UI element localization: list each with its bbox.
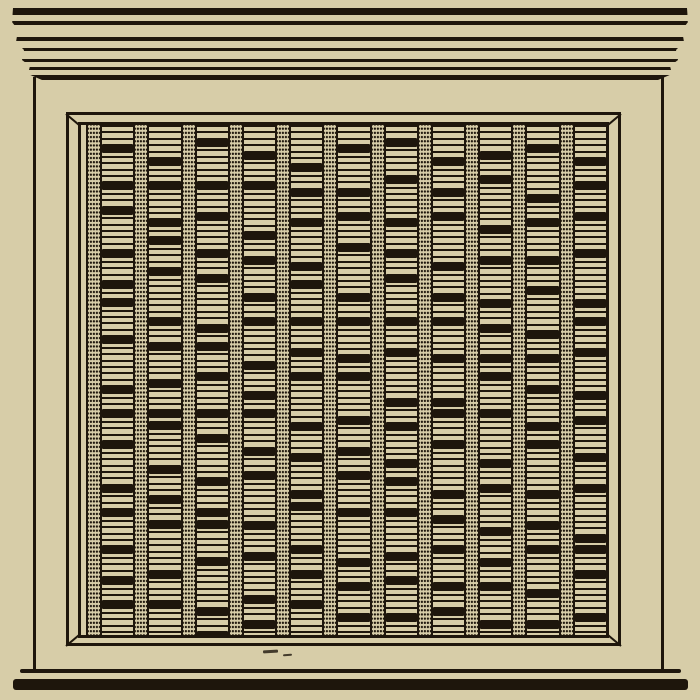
stack-bar [433,515,464,524]
stack-line [338,384,369,386]
stack-bar [575,157,606,166]
stack-line [244,545,275,547]
stack-line [102,421,133,423]
stack-line [480,434,511,436]
stack-line [197,618,228,620]
stack-bar [244,317,275,326]
stack-line [244,175,275,177]
stack-line [102,162,133,164]
stack-line [102,539,133,541]
stack-line [244,427,275,429]
stack-bar [149,520,180,529]
stack-bar [244,151,275,160]
slat-unit [86,125,133,635]
stack-line [291,434,322,436]
stack-line [575,521,606,523]
stack-line [480,144,511,146]
stack-line [338,483,369,485]
stack-line [149,476,180,478]
cabinet-side-left [33,77,36,672]
stack-bar [527,144,558,153]
bar-stack [433,125,464,635]
stack-line [386,243,417,245]
stack-line [433,570,464,572]
stack-line [197,390,228,392]
stack-bar [291,570,322,579]
stack-bar [527,521,558,530]
perforated-strip [181,125,197,635]
stack-bar [244,361,275,370]
stack-line [386,212,417,214]
stack-line [575,261,606,263]
stack-line [480,427,511,429]
stack-bar [338,471,369,480]
stack-line [527,324,558,326]
stack-line [102,372,133,374]
stack-bar [291,317,322,326]
stack-bar [338,447,369,456]
stack-line [433,385,464,387]
stack-line [149,193,180,195]
stack-bar [149,465,180,474]
stack-bar [433,188,464,197]
stack-line [575,594,606,596]
stack-line [433,477,464,479]
stack-bar [244,471,275,480]
stack-line [480,453,511,455]
stack-line [527,274,558,276]
stack-line [433,452,464,454]
stack-line [575,440,606,442]
stack-bar [244,552,275,561]
stack-line [197,169,228,171]
stack-line [102,125,133,127]
stack-line [149,175,180,177]
stack-line [244,495,275,497]
stack-line [338,489,369,491]
stack-line [291,397,322,399]
stack-line [102,557,133,559]
stack-bar [433,212,464,221]
stack-line [291,631,322,633]
stack-line [433,206,464,208]
stack-line [102,465,133,467]
stack-line [575,607,606,609]
stack-line [433,329,464,331]
stack-line [244,483,275,485]
stack-line [244,589,275,591]
stack-line [527,175,558,177]
stack-bar [386,613,417,622]
stack-line [527,138,558,140]
stack-bar [480,527,511,536]
stack-line [102,360,133,362]
stack-line [291,625,322,627]
stack-bar [433,409,464,418]
stack-line [102,316,133,318]
stack-line [338,552,369,554]
stack-line [149,513,180,515]
stack-bar [338,293,369,302]
stack-bar [197,631,228,635]
perforated-strip [370,125,386,635]
stack-line [338,342,369,344]
stack-line [149,151,180,153]
stack-line [149,199,180,201]
stack-line [575,625,606,627]
stack-line [244,218,275,220]
stack-line [197,243,228,245]
stack-line [575,409,606,411]
stack-line [338,607,369,609]
stack-line [527,188,558,190]
stack-line [291,513,322,515]
stack-line [433,379,464,381]
stack-line [527,267,558,269]
stack-line [338,545,369,547]
stack-line [575,267,606,269]
stack-bar [480,151,511,160]
stack-line [244,249,275,251]
bar-stack [102,125,133,635]
stack-bar [575,570,606,579]
stack-line [575,230,606,232]
stack-line [291,384,322,386]
stack-line [149,594,180,596]
stack-bar [102,440,133,449]
stack-bar [433,354,464,363]
stack-line [291,588,322,590]
stack-line [433,557,464,559]
stack-line [433,600,464,602]
stack-bar [291,545,322,554]
stack-line [527,607,558,609]
stack-line [386,385,417,387]
stack-bar [527,218,558,227]
stack-line [244,329,275,331]
stack-line [102,292,133,294]
stack-line [386,236,417,238]
stack-line [149,279,180,281]
stack-line [102,353,133,355]
slat-unit [181,125,228,635]
stack-bar [433,607,464,616]
stack-line [575,563,606,565]
stack-line [386,261,417,263]
print-artifact-dash [283,654,292,657]
stack-line [480,390,511,392]
stack-bar [480,175,511,184]
stack-line [480,539,511,541]
stack-line [527,156,558,158]
stack-bar [197,409,228,418]
stack-line [197,149,228,151]
stack-line [575,385,606,387]
stack-line [149,169,180,171]
stack-line [149,298,180,300]
stack-line [575,527,606,529]
stack-line [149,390,180,392]
stack-bar [575,484,606,493]
stack-line [433,434,464,436]
stack-line [386,526,417,528]
stack-line [338,427,369,429]
stack-line [149,507,180,509]
stack-line [102,427,133,429]
cornice-line [12,59,688,62]
stack-line [102,612,133,614]
stack-line [338,465,369,467]
stack-bar [480,582,511,591]
stack-line [102,471,133,473]
stack-line [386,545,417,547]
stack-line [480,607,511,609]
stack-line [244,403,275,405]
stack-bar [149,495,180,504]
stack-line [197,131,228,133]
stack-line [480,570,511,572]
stack-line [102,631,133,633]
stack-line [149,329,180,331]
stack-line [575,311,606,313]
stack-line [102,520,133,522]
stack-line [575,515,606,517]
stack-line [575,206,606,208]
stack-line [527,230,558,232]
stack-line [338,254,369,256]
stack-line [338,526,369,528]
stack-bar [102,206,133,215]
stack-bar [575,391,606,400]
stack-line [386,434,417,436]
stack-line [480,545,511,547]
stack-line [197,353,228,355]
stack-line [338,403,369,405]
stack-bar [291,372,322,381]
stack-line [102,230,133,232]
stack-bar [244,293,275,302]
stack-bar [197,520,228,529]
slat-unit [322,125,369,635]
cornice-line [12,75,688,80]
stack-line [527,249,558,251]
stack-line [244,274,275,276]
stack-line [386,600,417,602]
stack-line [197,224,228,226]
slat-unit [417,125,464,635]
perforated-strip [417,125,433,635]
stack-line [197,335,228,337]
stack-bar [575,545,606,554]
stack-line [433,625,464,627]
stack-line [149,131,180,133]
stack-line [433,243,464,245]
stack-line [433,421,464,423]
stack-line [149,230,180,232]
stack-line [386,125,417,127]
stack-line [575,199,606,201]
stack-line [338,224,369,226]
stack-line [197,298,228,300]
stack-line [527,533,558,535]
stack-line [102,236,133,238]
stack-line [338,625,369,627]
stack-bar [244,256,275,265]
stack-line [102,434,133,436]
stack-line [291,249,322,251]
stack-line [149,248,180,250]
stack-line [197,156,228,158]
stack-line [527,613,558,615]
stack-line [386,206,417,208]
stack-line [149,612,180,614]
perforated-strip [464,125,480,635]
stack-line [338,230,369,232]
stack-line [386,489,417,491]
stack-bar [575,249,606,258]
stack-line [102,563,133,565]
stack-bar [338,317,369,326]
stack-bar [575,181,606,190]
stack-line [291,157,322,159]
stack-line [244,440,275,442]
stack-bar [149,181,180,190]
stack-line [291,212,322,214]
stack-bar [575,348,606,357]
stack-line [480,125,511,127]
stack-line [149,353,180,355]
bar-stack [527,125,558,635]
stack-line [575,144,606,146]
stack-line [575,427,606,429]
stack-line [480,471,511,473]
stack-line [433,484,464,486]
bar-stack [244,125,275,635]
stack-line [527,600,558,602]
stack-line [527,366,558,368]
stack-line [197,292,228,294]
stack-line [480,613,511,615]
stack-bar [480,409,511,418]
stack-bar [386,576,417,585]
stack-line [291,526,322,528]
cornice-line [12,8,688,15]
stack-line [480,311,511,313]
stack-bar [291,490,322,499]
stack-line [527,311,558,313]
stack-bar [527,440,558,449]
stack-line [149,458,180,460]
stack-line [197,458,228,460]
stack-line [575,447,606,449]
stack-line [480,397,511,399]
stack-line [149,557,180,559]
stack-line [433,576,464,578]
stack-line [244,607,275,609]
stack-line [149,403,180,405]
stack-line [149,254,180,256]
stack-line [386,471,417,473]
stack-line [197,495,228,497]
stack-line [527,348,558,350]
stack-line [244,385,275,387]
stack-line [480,384,511,386]
stack-line [197,285,228,287]
stack-line [480,421,511,423]
stack-line [433,372,464,374]
stack-bar [149,317,180,326]
stack-line [291,533,322,535]
stack-bar [386,175,417,184]
stack-line [575,131,606,133]
stack-line [433,175,464,177]
stack-line [480,403,511,405]
stack-bar [244,447,275,456]
stack-line [338,434,369,436]
stack-line [480,508,511,510]
stack-line [149,618,180,620]
stack-bar [433,157,464,166]
stack-bar [386,317,417,326]
stack-line [244,421,275,423]
stack-line [386,453,417,455]
stack-bar [197,212,228,221]
stack-line [197,575,228,577]
stack-bar [244,181,275,190]
stack-line [197,261,228,263]
stack-line [197,600,228,602]
stack-line [527,502,558,504]
stack-line [575,360,606,362]
stack-bar [338,372,369,381]
stack-line [480,280,511,282]
stack-line [386,156,417,158]
stack-line [244,162,275,164]
stack-line [291,581,322,583]
stack-line [433,181,464,183]
stack-line [291,206,322,208]
stack-line [244,280,275,282]
stack-line [338,366,369,368]
stack-line [102,199,133,201]
stack-line [149,439,180,441]
stack-line [386,379,417,381]
stack-bar [386,398,417,407]
stack-line [575,335,606,337]
stack-line [291,440,322,442]
stack-line [386,335,417,337]
perforated-strip [559,125,575,635]
stack-line [244,465,275,467]
stack-line [338,520,369,522]
stack-line [575,372,606,374]
stack-line [575,125,606,127]
stack-bar [149,379,180,388]
stack-line [244,515,275,517]
stack-line [338,576,369,578]
stack-line [244,582,275,584]
stack-bar [386,274,417,283]
stack-line [197,162,228,164]
stack-bar [197,372,228,381]
stack-line [149,144,180,146]
slat-unit [511,125,558,635]
stack-line [291,390,322,392]
stack-bar [197,274,228,283]
stack-line [244,199,275,201]
stack-line [338,594,369,596]
stack-line [480,366,511,368]
